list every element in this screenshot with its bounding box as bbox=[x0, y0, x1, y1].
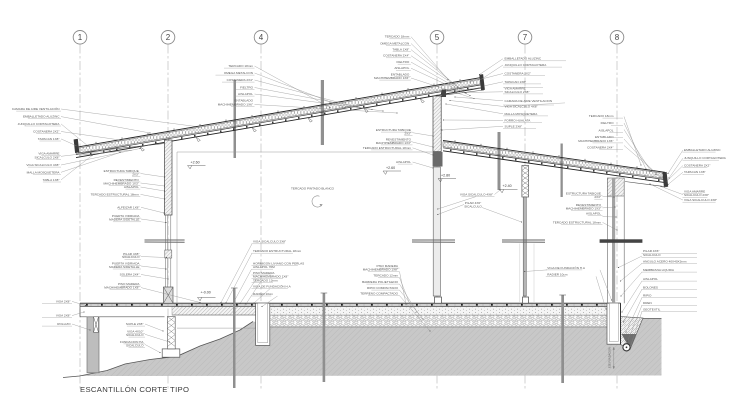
svg-text:EJE FUNDACION: EJE FUNDACION bbox=[608, 347, 612, 368]
svg-text:FIELTRO: FIELTRO bbox=[240, 86, 253, 90]
svg-text:VIGA DE FUNDACIÓN H.A: VIGA DE FUNDACIÓN H.A bbox=[547, 265, 586, 270]
svg-text:SICALCULO 2X8": SICALCULO 2X8" bbox=[505, 90, 530, 94]
svg-text:7: 7 bbox=[523, 33, 528, 42]
svg-text:TAPACAN 1X8": TAPACAN 1X8" bbox=[684, 170, 706, 174]
svg-text:COSTANERA 2X4": COSTANERA 2X4" bbox=[227, 78, 253, 82]
svg-text:SICALCULO: SICALCULO bbox=[126, 333, 144, 337]
svg-text:DREN: DREN bbox=[643, 301, 652, 305]
svg-text:EMBALLETADO ALUZINC: EMBALLETADO ALUZINC bbox=[505, 57, 542, 61]
svg-text:COSTANERA 2X2": COSTANERA 2X2" bbox=[684, 164, 710, 168]
svg-text:OMEGA METALCON: OMEGA METALCON bbox=[224, 71, 253, 75]
svg-text:MALLA MOSQUETERA: MALLA MOSQUETERA bbox=[27, 170, 61, 174]
svg-text:MADERA S/DETALLE: MADERA S/DETALLE bbox=[109, 218, 139, 222]
svg-text:ALFEIZAR 1X8": ALFEIZAR 1X8" bbox=[117, 205, 139, 209]
svg-text:BARRERA POLIETILENO: BARRERA POLIETILENO bbox=[362, 280, 399, 284]
svg-text:VIGA SICALCULO 2X8": VIGA SICALCULO 2X8" bbox=[253, 240, 286, 244]
svg-text:ANGULO ACERO 40X40X3mm: ANGULO ACERO 40X40X3mm bbox=[643, 259, 687, 263]
svg-text:GEOTEXTIL: GEOTEXTIL bbox=[643, 307, 661, 311]
svg-text:+2.80: +2.80 bbox=[441, 173, 450, 177]
svg-text:RADIER 10cm: RADIER 10cm bbox=[253, 292, 274, 296]
svg-text:AISLAPOL: AISLAPOL bbox=[124, 185, 139, 189]
svg-text:SICALCULO 2X8": SICALCULO 2X8" bbox=[35, 155, 60, 159]
svg-text:ESCANTILLÓN CORTE TIPO: ESCANTILLÓN CORTE TIPO bbox=[80, 385, 189, 394]
svg-text:VIGA 2X8": VIGA 2X8" bbox=[56, 314, 71, 318]
svg-text:SUPLE 2X8": SUPLE 2X8" bbox=[126, 322, 144, 326]
svg-text:ROLLIZO: ROLLIZO bbox=[57, 322, 71, 326]
svg-text:AISLAPOL: AISLAPOL bbox=[396, 160, 411, 164]
svg-text:1: 1 bbox=[78, 33, 83, 42]
svg-text:SICALCULO: SICALCULO bbox=[126, 343, 144, 347]
svg-text:TERCADO PINTADO BLANCO: TERCADO PINTADO BLANCO bbox=[291, 187, 335, 191]
svg-text:VIGA SICALCULO 4X8": VIGA SICALCULO 4X8" bbox=[26, 163, 59, 167]
svg-text:TABLA 1X8": TABLA 1X8" bbox=[392, 48, 409, 52]
svg-text:MACHIHEMBRADO 1X6": MACHIHEMBRADO 1X6" bbox=[218, 103, 253, 107]
svg-text:2: 2 bbox=[166, 33, 171, 42]
svg-text:AISLAPOL: AISLAPOL bbox=[238, 92, 253, 96]
svg-text:EMBALLETADO ALUZINC: EMBALLETADO ALUZINC bbox=[684, 148, 721, 152]
svg-text:JUNQUILLO CORTAGOTERA: JUNQUILLO CORTAGOTERA bbox=[505, 63, 548, 67]
svg-text:TERRENO COMPACTADO: TERRENO COMPACTADO bbox=[360, 292, 398, 296]
svg-text:MEMBRANA LIQUIDA: MEMBRANA LIQUIDA bbox=[643, 268, 675, 272]
svg-text:+2.60: +2.60 bbox=[386, 166, 395, 170]
svg-text:+2.60: +2.60 bbox=[191, 160, 200, 164]
svg-text:TERCADO 12mm: TERCADO 12mm bbox=[373, 274, 398, 278]
svg-text:OMEGA METALCON: OMEGA METALCON bbox=[380, 42, 409, 46]
svg-text:SICALCULO: SICALCULO bbox=[643, 253, 661, 257]
svg-text:SUPLE 2X8": SUPLE 2X8" bbox=[505, 124, 523, 128]
svg-text:TABLA 1X8": TABLA 1X8" bbox=[43, 178, 60, 182]
svg-text:VIGA SICALCULO 4X8": VIGA SICALCULO 4X8" bbox=[460, 193, 493, 197]
svg-text:TERCADO 18mm: TERCADO 18mm bbox=[589, 114, 614, 118]
svg-text:COSTANERA 2X2": COSTANERA 2X2" bbox=[505, 72, 531, 76]
svg-text:COSTANERA 2X4": COSTANERA 2X4" bbox=[383, 54, 409, 58]
svg-text:TERCADO ESTRUCTURAL 18mm: TERCADO ESTRUCTURAL 18mm bbox=[553, 220, 602, 224]
svg-text:+-0.00: +-0.00 bbox=[201, 291, 211, 295]
svg-text:BOLONES: BOLONES bbox=[643, 285, 658, 289]
svg-text:TAPACAN 1X8": TAPACAN 1X8" bbox=[38, 137, 60, 141]
svg-text:COSTANERA 2X2": COSTANERA 2X2" bbox=[33, 130, 59, 134]
svg-text:AISLAPOL: AISLAPOL bbox=[394, 66, 409, 70]
svg-text:TERCADO 12mm: TERCADO 12mm bbox=[253, 279, 278, 283]
svg-text:VIGA 2X8": VIGA 2X8" bbox=[56, 299, 71, 303]
svg-text:CAMARA DE AIRE VENTILACIÓN: CAMARA DE AIRE VENTILACIÓN bbox=[12, 106, 60, 111]
svg-text:MACHIHEMBRADO 1X6": MACHIHEMBRADO 1X6" bbox=[578, 139, 613, 143]
svg-text:JUNQUILLO CORTAGOTERA: JUNQUILLO CORTAGOTERA bbox=[18, 122, 61, 126]
svg-text:AISLAPOL 70M: AISLAPOL 70M bbox=[253, 265, 275, 269]
svg-text:CAMARA DE AIRE VENTILACION: CAMARA DE AIRE VENTILACION bbox=[505, 99, 553, 103]
svg-text:AISLAPOL: AISLAPOL bbox=[586, 212, 601, 216]
svg-text:4: 4 bbox=[259, 33, 264, 42]
svg-text:TERCADO ESTRUCTURAL 18mm: TERCADO ESTRUCTURAL 18mm bbox=[91, 192, 140, 196]
svg-text:RADIER 10cm: RADIER 10cm bbox=[547, 272, 568, 276]
svg-text:SICALCULO 2X8": SICALCULO 2X8" bbox=[684, 193, 709, 197]
svg-text:2X3": 2X3" bbox=[132, 172, 139, 176]
svg-text:AISLAPOL: AISLAPOL bbox=[643, 277, 658, 281]
svg-text:COSTANERA 2X4": COSTANERA 2X4" bbox=[587, 145, 613, 149]
svg-text:TAPACAN 1X8": TAPACAN 1X8" bbox=[505, 80, 527, 84]
svg-text:JUNQUILLO CORTAGOTERA: JUNQUILLO CORTAGOTERA bbox=[684, 156, 727, 160]
svg-text:TERCADO ESTRUCTURAL 18mm: TERCADO ESTRUCTURAL 18mm bbox=[363, 146, 412, 150]
svg-text:MADERA S/DETALLE: MADERA S/DETALLE bbox=[109, 265, 139, 269]
svg-text:MALLA MOSQUETERA: MALLA MOSQUETERA bbox=[505, 112, 539, 116]
svg-text:FORRO HUALATA: FORRO HUALATA bbox=[505, 118, 532, 122]
svg-text:FIELTRO: FIELTRO bbox=[396, 60, 409, 64]
svg-text:TERCADO ESTRUCTURAL 18mm: TERCADO ESTRUCTURAL 18mm bbox=[253, 249, 302, 253]
svg-text:+2.40: +2.40 bbox=[503, 184, 512, 188]
svg-text:AISLAPOL: AISLAPOL bbox=[599, 128, 614, 132]
svg-text:5: 5 bbox=[435, 33, 440, 42]
svg-text:MACHIHEMBRADO 1X6": MACHIHEMBRADO 1X6" bbox=[374, 76, 409, 80]
svg-text:SICALCULO: SICALCULO bbox=[122, 255, 140, 259]
svg-text:TERCADO 18mm: TERCADO 18mm bbox=[228, 64, 253, 68]
svg-text:EMBALLETADO ALUZINC: EMBALLETADO ALUZINC bbox=[23, 115, 60, 119]
svg-text:RIPIO COMPACTADO: RIPIO COMPACTADO bbox=[367, 286, 399, 290]
svg-text:2X3": 2X3" bbox=[594, 195, 601, 199]
svg-text:MACHIHEMBRADO 1X8": MACHIHEMBRADO 1X8" bbox=[363, 268, 398, 272]
svg-text:2X3": 2X3" bbox=[404, 132, 411, 136]
svg-text:FIELTRO: FIELTRO bbox=[601, 121, 614, 125]
svg-text:MACHIHEMBRADO 1X3": MACHIHEMBRADO 1X3" bbox=[376, 141, 411, 145]
svg-text:MACHIHEMBRADO 1X8": MACHIHEMBRADO 1X8" bbox=[104, 286, 139, 290]
svg-text:RIPIO: RIPIO bbox=[643, 294, 652, 298]
svg-text:TERCADO 18mm: TERCADO 18mm bbox=[385, 35, 410, 39]
svg-text:8: 8 bbox=[615, 33, 620, 42]
svg-text:MACHIHEMBRADO 1X3": MACHIHEMBRADO 1X3" bbox=[566, 206, 601, 210]
svg-text:SICALCULO: SICALCULO bbox=[464, 205, 482, 209]
svg-text:VIGA SICALCULO 4X8": VIGA SICALCULO 4X8" bbox=[684, 198, 717, 202]
svg-text:SOLERA 2X4": SOLERA 2X4" bbox=[120, 273, 140, 277]
